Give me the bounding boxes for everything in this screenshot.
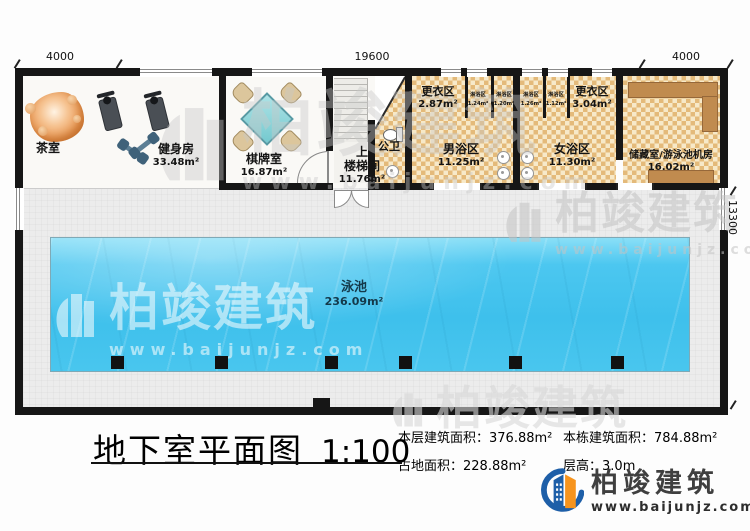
window [252,67,322,77]
brand-logo: 柏竣建筑 www.baijunjz.com [538,464,750,520]
window [548,67,568,77]
stair-up-label: 上 [356,146,368,160]
drawing-title: 地下室平面图 [93,424,303,472]
room-label-pool: 泳池 [341,281,367,296]
shower-stall-area: 1.12m² [546,101,567,107]
room-label-changing-right: 更衣区 [576,86,609,99]
room-label-men-bath: 男浴区 [443,143,479,157]
stat-footprint-area: 占地面积：228.88m² [398,455,551,474]
dimension-tick [730,400,737,409]
dimension-right-side: 13300 [726,200,739,235]
shower-stall-divider [543,76,546,118]
tea-room-stone [73,115,81,123]
room-area-gym: 33.48m² [153,157,199,169]
wall-storage-bottom [650,183,720,190]
dimension-tick [727,59,734,68]
window-left [14,188,24,230]
wall-men-women [513,74,520,190]
dimension-top-left: 4000 [25,50,95,63]
wall-chess-bottom [219,183,333,190]
chess-room-door-leaf [327,151,329,183]
dimension-tick [639,59,646,68]
pool-column [325,356,338,369]
dimension-tick [14,59,21,68]
storage-doorway [616,183,654,190]
room-area-chess: 16.87m² [241,167,287,179]
floor-drain [386,165,399,178]
shower-stall-area: 1.24m² [468,101,489,107]
floor-plan-canvas: 4000 19600 4000 13300 [0,0,750,531]
room-label-stair: 楼梯间 [344,160,380,174]
drawing-scale: 1:100 [321,434,410,470]
wall-bath-storage [616,74,623,160]
shower-stall-label: 淋浴区 [496,92,512,98]
shower-head [497,167,510,180]
window [592,67,612,77]
wall-bottom [15,407,728,415]
tea-room-stone [38,126,48,136]
tea-room-stone [67,95,77,105]
wall-bath-bottom-3 [583,183,616,190]
title-underline [91,462,402,464]
room-area-men-bath: 11.25m² [438,157,484,169]
window [467,67,487,77]
wall-gym-chess [219,74,226,190]
room-label-toilet: 公卫 [378,141,400,154]
room-label-chess: 棋牌室 [246,153,282,167]
wall-left [15,68,23,415]
floor-edge-line [23,188,219,189]
brand-name: 柏竣建筑 [591,470,750,497]
room-area-storage: 16.02m² [648,162,694,174]
pool-column [399,356,412,369]
tea-room-stone [25,103,36,114]
window [441,67,461,77]
shower-stall-divider [567,76,570,118]
brand-logo-icon [538,464,584,520]
wall-pier [313,398,330,407]
shower-stall-divider [491,76,494,118]
window [522,67,542,77]
shower-stall-divider [465,76,468,118]
room-area-changing-right: 3.04m² [572,99,611,111]
room-label-women-bath: 女浴区 [554,143,590,157]
room-area-changing-left: 2.87m² [418,99,457,111]
pool-column [611,356,624,369]
stat-building-area: 本栋建筑面积：784.88m² [563,427,717,446]
shower-head [521,151,534,164]
room-label-storage: 储藏室/游泳池机房 [629,150,713,162]
wall-bath-bottom-2 [478,183,537,190]
room-area-women-bath: 11.30m² [549,157,595,169]
drawing-title-row: 地下室平面图 1:100 [93,424,410,472]
brand-url: www.baijunjz.com [591,500,750,515]
women-bath-doorway [537,183,587,190]
wall-toilet-bath [405,74,412,190]
shower-head [521,167,534,180]
stair-treads [334,78,368,142]
dimension-tick [730,186,737,195]
pool-column [509,356,522,369]
wall-right [720,68,728,415]
pool-column [111,356,124,369]
men-bath-doorway [432,183,482,190]
pool-column [215,356,228,369]
room-label-tea: 茶室 [36,142,60,156]
room-area-stair: 11.76m² [339,174,385,186]
shower-stall-area: 1.26m² [521,101,542,107]
room-area-pool: 236.09m² [325,296,384,309]
dimension-top-right: 4000 [651,50,721,63]
dimension-tick [116,59,123,68]
dimension-top-center: 19600 [337,50,407,63]
shower-stall-label: 淋浴区 [548,92,564,98]
shower-stall-label: 淋浴区 [470,92,486,98]
wall-chess-stair [326,74,333,151]
shower-head [497,151,510,164]
stat-floor-area: 本层建筑面积：376.88m² [398,427,551,446]
room-label-gym: 健身房 [158,143,194,157]
shower-stall-label: 淋浴区 [523,92,539,98]
window [140,67,212,77]
storage-shelf-right [702,96,718,132]
room-label-changing-left: 更衣区 [422,86,455,99]
shower-stall-area: 1.20m² [494,101,515,107]
